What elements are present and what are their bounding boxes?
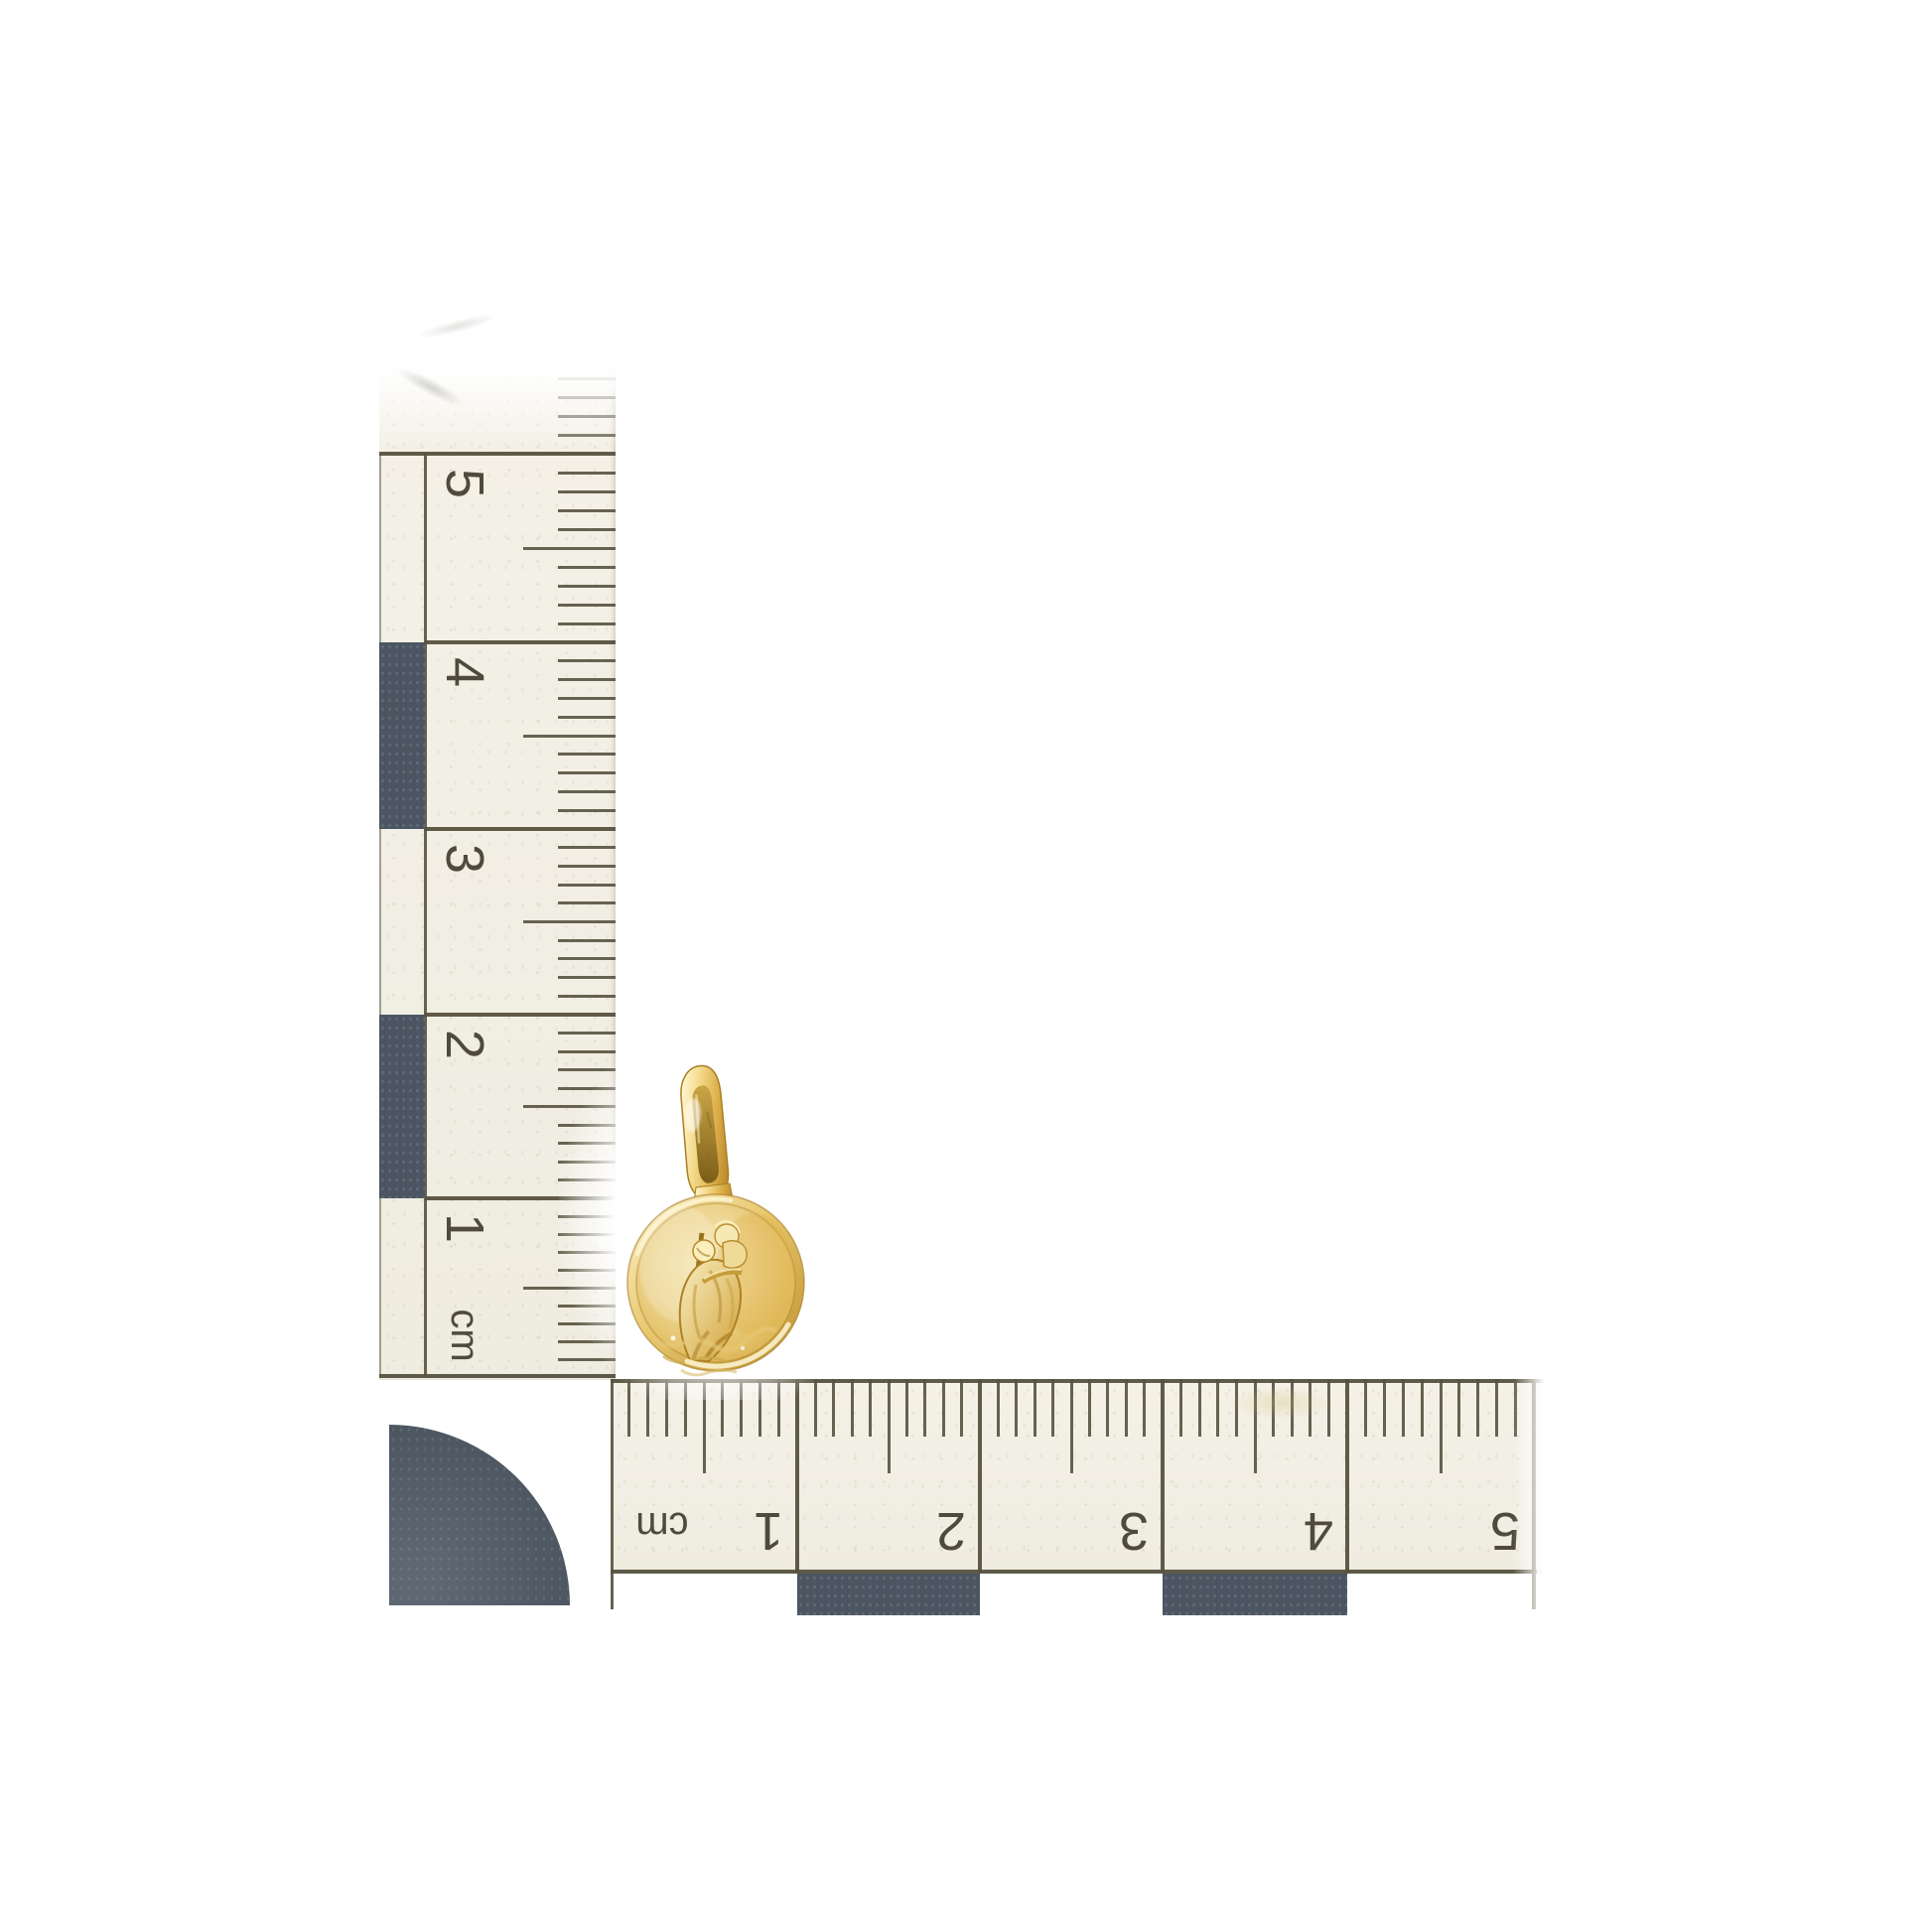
ruler-tick	[1106, 1379, 1109, 1437]
ruler-tick	[1034, 1379, 1036, 1437]
ruler-edge-line	[611, 1570, 1537, 1574]
medal-disc	[627, 1194, 804, 1375]
scale-block-dark	[379, 1015, 425, 1198]
scale-block-dark	[797, 1574, 980, 1615]
ruler-tick	[1125, 1379, 1128, 1437]
vertical-ruler-ticks	[379, 367, 616, 1380]
ruler-tick	[1495, 1379, 1498, 1437]
ruler-tick	[558, 771, 616, 774]
ruler-tick	[1421, 1379, 1424, 1437]
ruler-label-3cm: 3	[435, 829, 494, 889]
ruler-divider-line	[424, 454, 427, 1377]
ruler-tick	[558, 995, 616, 998]
ruler-tick	[558, 753, 616, 756]
ruler-tick	[1476, 1379, 1479, 1437]
ruler-tick	[1198, 1379, 1201, 1437]
gold-st-christopher-medal-pendant	[594, 1040, 842, 1408]
ruler-unit-label: cm	[627, 1496, 697, 1556]
cm-line	[379, 452, 616, 456]
ruler-label-2cm: 2	[435, 1015, 494, 1074]
ruler-tick	[558, 566, 616, 569]
ruler-edge-line	[379, 1374, 616, 1378]
ruler-tick	[523, 735, 616, 738]
ruler-tick	[558, 604, 616, 607]
ruler-tick	[942, 1379, 945, 1437]
ruler-tick	[888, 1379, 891, 1473]
ruler-label-1cm: 1	[435, 1198, 494, 1258]
ruler-end-fade	[377, 363, 620, 447]
pendant-bail	[673, 1064, 736, 1201]
ruler-tick	[1254, 1379, 1257, 1473]
ruler-tick	[1383, 1379, 1386, 1437]
ruler-label-5cm: 5	[435, 454, 494, 513]
ruler-unit-label: cm	[430, 1301, 499, 1370]
ruler-tick	[558, 490, 616, 493]
ruler-tick	[1179, 1379, 1182, 1437]
ruler-label-4cm: 4	[1284, 1496, 1353, 1566]
ruler-tick	[1235, 1379, 1238, 1437]
ruler-tick	[960, 1379, 963, 1437]
ruler-tick	[523, 920, 616, 923]
ruler-tick	[558, 622, 616, 625]
ruler-tick	[558, 939, 616, 942]
ruler-tick	[558, 846, 616, 849]
ruler-tick	[523, 547, 616, 550]
ruler-tick	[1291, 1379, 1294, 1437]
ruler-tick	[558, 901, 616, 904]
ruler-tick	[558, 528, 616, 531]
ruler-tick	[558, 865, 616, 868]
ruler-tick	[1051, 1379, 1054, 1437]
ruler-tick	[558, 697, 616, 700]
ruler-tick	[1070, 1379, 1073, 1473]
ruler-tick	[558, 716, 616, 719]
ruler-label-1cm: 1	[734, 1496, 803, 1566]
photo-smudge	[415, 310, 501, 343]
ruler-tick	[558, 678, 616, 681]
ruler-tick	[869, 1379, 872, 1437]
scale-block-dark	[379, 642, 425, 829]
ruler-tick	[1272, 1379, 1275, 1437]
ruler-tick	[1457, 1379, 1460, 1437]
cm-line	[611, 1379, 614, 1609]
ruler-tick	[558, 976, 616, 979]
ruler-label-2cm: 2	[916, 1496, 986, 1566]
ruler-tick	[558, 790, 616, 793]
ruler-tick	[1440, 1379, 1443, 1473]
ruler-label-3cm: 3	[1099, 1496, 1169, 1566]
ruler-tick	[905, 1379, 908, 1437]
ruler-tick	[923, 1379, 926, 1437]
vertical-ruler: 5 4 3 2 1 cm	[379, 367, 616, 1380]
scale-block-dark	[1163, 1574, 1347, 1615]
ruler-tick	[558, 659, 616, 662]
photo-canvas: 5 4 3 2 1 cm cm 1 2 3 4 5	[0, 0, 1932, 1932]
ruler-tick	[558, 1032, 616, 1035]
ruler-tick	[1216, 1379, 1219, 1437]
ruler-tick	[1088, 1379, 1091, 1437]
ruler-tick	[558, 472, 616, 475]
ruler-edge-line	[379, 454, 381, 1377]
ruler-tick	[1327, 1379, 1330, 1437]
corner-scale-quarter-circle-icon	[389, 1425, 570, 1605]
ruler-tick	[997, 1379, 1000, 1437]
ruler-tick	[558, 809, 616, 812]
ruler-tick	[558, 884, 616, 887]
ruler-tick	[1143, 1379, 1146, 1437]
ruler-end-fade	[1513, 1377, 1549, 1615]
ruler-tick	[1309, 1379, 1311, 1437]
ruler-tick	[558, 957, 616, 960]
ruler-tick	[1364, 1379, 1367, 1437]
ruler-tick	[558, 585, 616, 588]
ruler-tick	[558, 509, 616, 512]
ruler-tick	[1015, 1379, 1018, 1437]
ruler-tick	[1402, 1379, 1405, 1437]
horizontal-ruler: cm 1 2 3 4 5	[611, 1379, 1547, 1574]
ruler-tick	[851, 1379, 854, 1437]
ruler-label-4cm: 4	[435, 642, 494, 702]
